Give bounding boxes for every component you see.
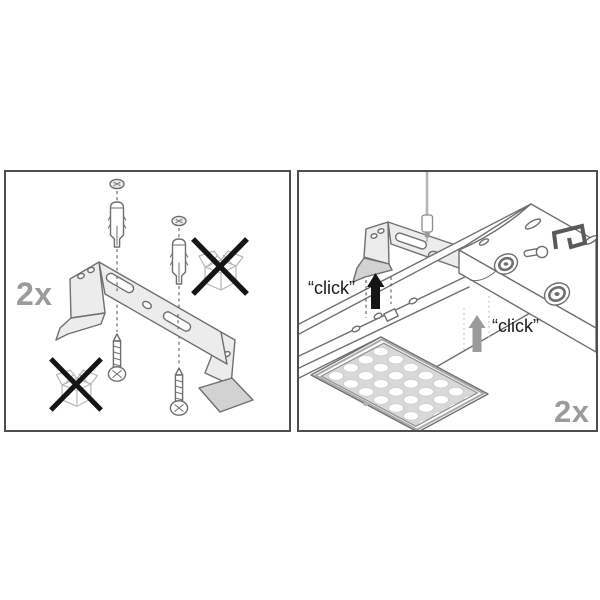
crossed-out-box-icon [193, 239, 247, 294]
bracket-foot [199, 378, 253, 412]
click-label: “click” [308, 278, 355, 299]
instruction-sheet: 2x [0, 0, 600, 600]
wall-plug-icon [108, 202, 125, 247]
screw-head-top-icon [110, 179, 124, 188]
quantity-label: 2x [16, 276, 53, 313]
panel-click-installation-step: “click” “click” 2x [297, 170, 598, 432]
power-connector [422, 215, 433, 232]
led-module [311, 337, 488, 430]
screw-icon [170, 368, 187, 415]
click-slot [384, 309, 398, 321]
bracket-foot [56, 313, 105, 340]
crossed-out-box-icon [51, 359, 101, 410]
suspension-cable [422, 172, 433, 242]
screw-icon [108, 334, 125, 381]
click-installation-illustration [299, 172, 596, 430]
wall-plug-icon [170, 239, 187, 284]
click-label: “click” [492, 316, 539, 337]
panel-bracket-mounting-step: 2x [4, 170, 291, 432]
screw-head-top-icon [172, 216, 186, 225]
quantity-label: 2x [554, 394, 589, 430]
